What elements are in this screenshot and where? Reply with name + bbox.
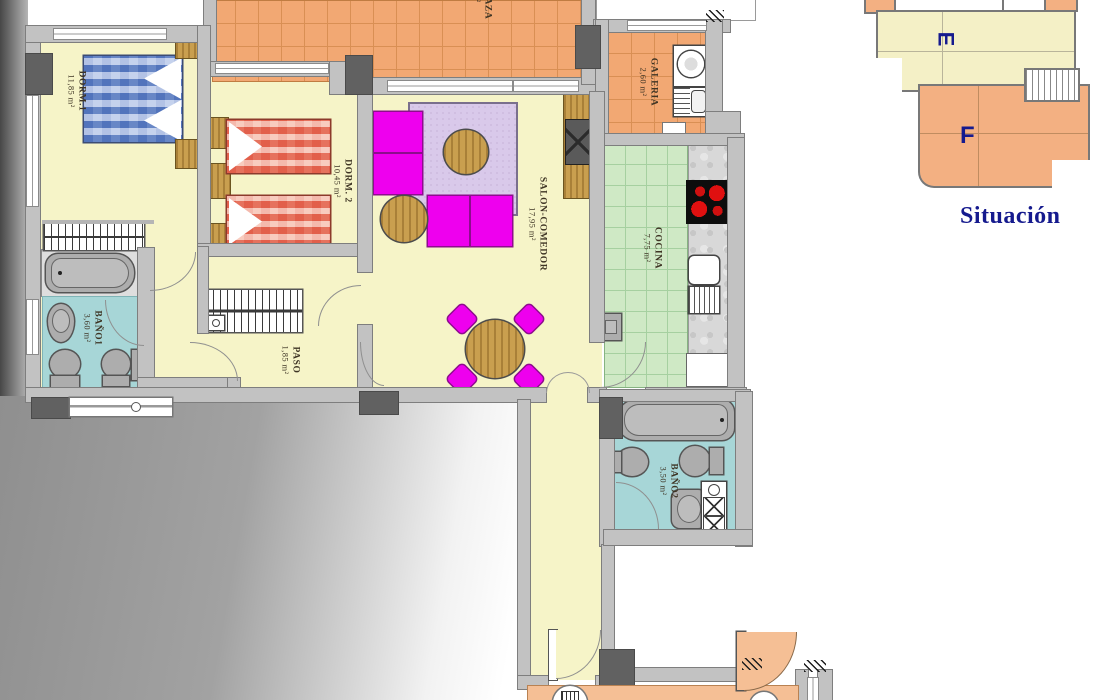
room-label-salon: SALON-COMEDOR17,95 m² [527,177,548,271]
window-dorm1-left [27,96,38,206]
paso-closet-box [208,316,224,330]
window-sill-bottom [70,398,172,416]
background-shadow-left [0,0,28,400]
galeria-sink-basin [692,91,705,112]
vent-circle [709,485,719,495]
background-shadow-bottom [0,396,530,700]
room-label-cocina: COCINA7,75 m² [642,227,663,269]
bano1-toilet [50,350,80,378]
minimap-top-unit [866,0,896,12]
room-label-terraza: TERRAZA5 m² [472,0,493,19]
hall-door-gap [808,678,818,700]
minimap-notch-2 [1052,160,1090,188]
tv [566,120,590,164]
adjacent-building [597,0,755,20]
dorm1-nightstand-bottom [176,140,200,168]
bano1-bidet [102,350,130,378]
room-label-galeria: GALERIA2,60 m² [638,58,659,107]
minimap-stairs [1026,70,1078,100]
wall [596,134,744,145]
hatch-marks-hall-2 [804,660,826,672]
coffee-table [444,130,488,174]
wall-pier [26,54,52,94]
bano2-bathtub [618,400,734,440]
situacion-title: Situación [960,203,1061,230]
wall-pier [600,650,634,686]
room-label-dorm2: DORM. 210,45 m² [332,159,353,203]
window-galeria-top [628,21,706,30]
bano2-toilet [680,446,710,476]
wall [602,545,614,653]
washer-drum [678,51,704,77]
window-terrace-dorm2 [216,64,328,73]
wall [590,92,604,342]
dorm1-closet [44,224,144,250]
vent-hatch-1 [704,498,724,515]
unit-f-label: F [960,122,975,150]
minimap-top-unit2 [1046,0,1076,10]
room-label-dorm1: DORM.111,85 m² [66,71,87,112]
wall [818,670,832,700]
wall [728,138,744,400]
wall-pier [600,398,622,438]
minimap-notch-1 [876,58,902,92]
room-label-bano2: BAÑO23,50 m² [658,463,679,498]
wall-pier [576,26,600,68]
kitchen-cupboard [687,354,729,386]
wall-pier [360,392,398,414]
bano1-bidet-base [103,376,129,386]
side-table [381,196,427,242]
wall [198,244,362,256]
stove [686,180,730,224]
wall [604,530,752,545]
wall [736,392,752,546]
room-label-paso: PASO1,85 m² [280,346,301,375]
stair-landing-glyph [562,692,578,700]
kitchen-sink-basin [689,256,719,284]
sofa-two-seater-vertical [374,112,422,194]
window-bano1-left [27,300,38,354]
bano1-toilet-tank [51,376,79,388]
wall-pier [346,56,372,94]
floor-plan-page: TERRAZA5 m² GALERIA2,60 m² COCINA7,75 m²… [0,0,1120,700]
wall [358,88,372,272]
wall [600,390,750,401]
window-dorm1-top [54,29,166,39]
hatch-marks-hall-1 [742,658,762,670]
wall [198,247,208,333]
wall [518,400,530,678]
wall-pier [32,398,70,418]
unit-e-label: E [932,32,958,47]
closet-divider [42,220,154,224]
kitchen-boiler [601,314,621,340]
window-terrace-salon [388,81,512,91]
terrace-slider [514,81,578,91]
kitchen-sink-drainer [689,287,719,313]
dining-table [466,320,524,378]
sill-detail [132,403,140,411]
bano2-toilet-tank [710,448,723,474]
hatch-marks-galeria [706,10,724,22]
sofa-two-seater-horizontal [428,196,512,246]
bano1-bathtub [46,254,134,292]
wall [706,20,722,120]
room-label-bano1: BAÑO13,60 m² [82,310,103,345]
wall [198,26,210,252]
